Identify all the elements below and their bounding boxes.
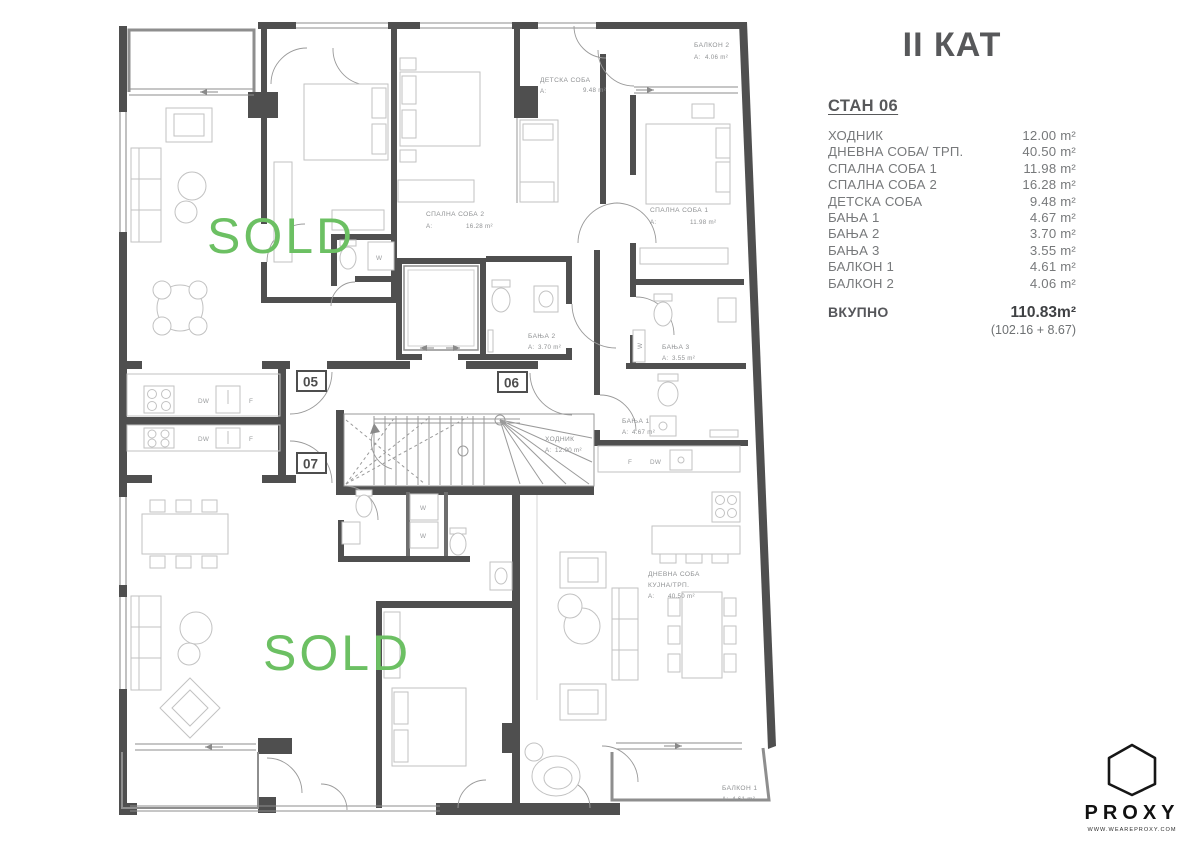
table-row: БАЛКОН 24.06 m² (828, 276, 1076, 292)
fridge-label: F (628, 459, 632, 466)
svg-text:40.50 m²: 40.50 m² (668, 593, 695, 600)
svg-text:4.67 m²: 4.67 m² (632, 429, 655, 436)
room-label-spalna1: СПАЛНА СОБА 1 (650, 207, 708, 214)
sofa (131, 596, 161, 690)
svg-text:A:: A: (694, 54, 700, 61)
table-row: ДНЕВНА СОБА/ ТРП.40.50 m² (828, 144, 1076, 160)
armchair (178, 172, 206, 200)
sink (718, 298, 736, 322)
apartment-title: СТАН 06 (828, 97, 898, 116)
page: { "panel": { "floor_title": "II КАТ", "a… (0, 0, 1190, 841)
balcony-terrace-outline (122, 752, 258, 808)
floor-plan: DW F DW F F DW W W W W БАЛКОН 2 A: 4.06 … (0, 0, 810, 841)
washer-label: W (420, 533, 427, 540)
proxy-logo: PROXY WWW.WEAREPROXY.COM (1076, 742, 1188, 833)
unit-06: 06 (504, 376, 520, 391)
fridge-label: F (249, 398, 253, 405)
dining-table (682, 592, 722, 678)
wardrobe (398, 180, 474, 202)
table-row: БАЊА 23.70 m² (828, 226, 1076, 242)
sink (490, 562, 512, 590)
table-row: БАЊА 14.67 m² (828, 210, 1076, 226)
svg-text:9.48 m²: 9.48 m² (583, 87, 606, 94)
svg-text:A:: A: (528, 344, 534, 351)
sink (534, 286, 558, 312)
room-label-dnevna: ДНЕВНА СОБА (648, 571, 700, 578)
dishwasher-label: DW (650, 459, 662, 466)
dishwasher-label: DW (198, 436, 210, 443)
armchair (560, 552, 606, 588)
floor-title: II КАТ (828, 26, 1076, 65)
dresser (640, 248, 728, 264)
kitchen-counter (598, 446, 740, 472)
plant (558, 594, 582, 618)
dining-table (142, 514, 228, 554)
armchair (532, 756, 580, 796)
kitchen-island (652, 526, 740, 554)
sofa (131, 148, 161, 242)
svg-text:A:: A: (662, 355, 668, 362)
balcony-2-top-left-outline (129, 30, 254, 92)
washer-label: W (637, 342, 644, 349)
rug (160, 678, 220, 738)
room-label-banja2: БАЊА 2 (528, 333, 556, 340)
toilet (492, 288, 510, 312)
total-label: ВКУПНО (828, 304, 889, 320)
balcony-1-outline (612, 748, 769, 800)
room-label-balkon2: БАЛКОН 2 (694, 42, 729, 49)
svg-text:3.70 m²: 3.70 m² (538, 344, 561, 351)
svg-text:A:: A: (545, 447, 551, 454)
unit-05: 05 (303, 375, 319, 390)
desk (520, 182, 554, 202)
hexagon-icon (1104, 742, 1160, 798)
washer-label: W (420, 505, 427, 512)
svg-text:A:: A: (648, 593, 654, 600)
toilet (658, 382, 678, 406)
stove (712, 492, 740, 522)
elevator (404, 266, 478, 351)
svg-text:A:: A: (426, 223, 432, 230)
sink (342, 522, 360, 544)
svg-text:A:: A: (540, 88, 546, 95)
tv-cabinet (166, 108, 212, 142)
total-row: ВКУПНО 110.83m² (828, 304, 1076, 322)
info-panel: II КАТ СТАН 06 ХОДНИК12.00 m² ДНЕВНА СОБ… (828, 26, 1076, 337)
table-row: ДЕТСКА СОБА9.48 m² (828, 194, 1076, 210)
sofa (612, 588, 638, 680)
brand-website: WWW.WEAREPROXY.COM (1076, 827, 1188, 833)
svg-text:A:: A: (722, 796, 728, 803)
toilet (654, 302, 672, 326)
armchair (178, 643, 200, 665)
room-area-table: ХОДНИК12.00 m² ДНЕВНА СОБА/ ТРП.40.50 m²… (828, 128, 1076, 292)
room-label-hodnik: ХОДНИК (545, 436, 574, 443)
total-note: (102.16 + 8.67) (828, 323, 1076, 337)
sold-overlay-unit05: SOLD (207, 208, 355, 264)
svg-text:КУЈНА/ТРП.: КУЈНА/ТРП. (648, 582, 689, 589)
unit-07: 07 (303, 457, 318, 472)
fridge-label: F (249, 436, 253, 443)
washer-label: W (376, 255, 383, 262)
unit-numbers: 05 06 07 (297, 371, 527, 473)
armchair (180, 612, 212, 644)
table-row: БАЛКОН 14.61 m² (828, 259, 1076, 275)
svg-text:A:: A: (650, 219, 656, 226)
total-value: 110.83m² (1011, 304, 1077, 322)
table-row: БАЊА 33.55 m² (828, 243, 1076, 259)
armchair (560, 684, 606, 720)
toilet (450, 533, 466, 555)
svg-text:4.06 m²: 4.06 m² (705, 54, 728, 61)
svg-text:12.00 m²: 12.00 m² (555, 447, 582, 454)
room-label-spalna2: СПАЛНА СОБА 2 (426, 211, 484, 218)
room-label-detska: ДЕТСКА СОБА (540, 77, 591, 84)
svg-text:A:: A: (622, 429, 628, 436)
kitchen-sink (670, 450, 692, 470)
svg-text:11.98 m²: 11.98 m² (690, 219, 716, 226)
room-label-banja1: БАЊА 1 (622, 418, 650, 425)
svg-text:3.55 m²: 3.55 m² (672, 355, 695, 362)
svg-text:4.61 m²: 4.61 m² (732, 796, 755, 803)
furniture (127, 58, 740, 796)
table-row: СПАЛНА СОБА 111.98 m² (828, 161, 1076, 177)
brand-name: PROXY (1076, 802, 1188, 825)
room-label-balkon1: БАЛКОН 1 (722, 785, 757, 792)
dishwasher-label: DW (198, 398, 210, 405)
room-label-banja3: БАЊА 3 (662, 344, 690, 351)
sold-overlay-unit07: SOLD (263, 625, 411, 681)
armchair (175, 201, 197, 223)
table-row: ХОДНИК12.00 m² (828, 128, 1076, 144)
table-row: СПАЛНА СОБА 216.28 m² (828, 177, 1076, 193)
svg-text:16.28 m²: 16.28 m² (466, 223, 493, 230)
toilet (356, 495, 372, 517)
